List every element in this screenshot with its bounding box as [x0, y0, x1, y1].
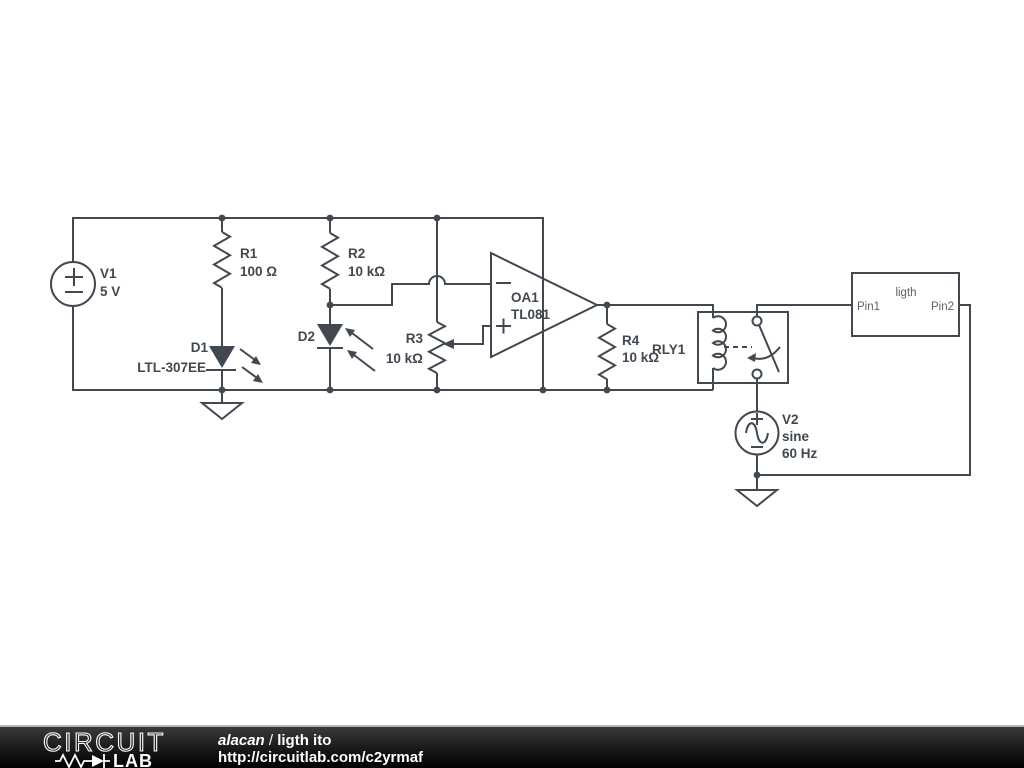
resistor-r2[interactable]: R2 10 kΩ [322, 233, 385, 289]
r3-value-label: 10 kΩ [386, 351, 423, 366]
logo-lab-text: LAB [113, 751, 153, 768]
rly1-ref-label: RLY1 [652, 342, 686, 357]
r4-zigzag[interactable] [599, 324, 615, 379]
ground-symbol-left[interactable] [202, 403, 242, 419]
d2-arrowhead-1 [345, 328, 355, 337]
wire-output[interactable] [597, 305, 713, 318]
resistor-r1[interactable]: R1 100 Ω [214, 232, 277, 288]
potentiometer-r3[interactable]: R3 10 kΩ [386, 322, 454, 373]
v1-value-label: 5 V [100, 284, 120, 299]
relay-rly1[interactable]: RLY1 [652, 312, 788, 383]
noninverting-input-icon [496, 319, 511, 334]
voltage-source-v1[interactable]: V1 5 V [51, 262, 120, 306]
d1-ref-label: D1 [191, 340, 209, 355]
oa1-ref-label: OA1 [511, 290, 539, 305]
v1-ref-label: V1 [100, 266, 117, 281]
share-url: http://circuitlab.com/c2yrmaf [218, 749, 423, 766]
v2-freq-label: 60 Hz [782, 446, 818, 461]
junction-dot [327, 215, 334, 222]
rly1-actuation-arrow [753, 347, 780, 359]
wire-inverting-input[interactable] [330, 276, 491, 305]
junction-dot [434, 215, 441, 222]
subcircuit-ligth[interactable]: ligth Pin1 Pin2 [852, 273, 959, 336]
v2-ref-label: V2 [782, 412, 799, 427]
resistor-r4[interactable]: R4 10 kΩ [599, 324, 659, 379]
r4-ref-label: R4 [622, 333, 640, 348]
junction-dot [219, 215, 226, 222]
r2-value-label: 10 kΩ [348, 264, 385, 279]
project-title: ligth ito [277, 732, 331, 749]
r2-ref-label: R2 [348, 246, 365, 261]
wire-noninverting-input[interactable] [452, 326, 491, 344]
junction-dot [604, 302, 611, 309]
r1-value-label: 100 Ω [240, 264, 277, 279]
ground-symbol-right[interactable] [737, 490, 777, 506]
junction-dot [219, 387, 226, 394]
divider: / [269, 732, 273, 749]
d2-ref-label: D2 [298, 329, 315, 344]
schematic-canvas[interactable]: V1 5 V R1 100 Ω R2 10 kΩ D1 LTL-307EE [0, 0, 1024, 725]
photodiode-d2[interactable]: D2 [298, 324, 375, 371]
junction-dot [604, 387, 611, 394]
d2-triangle [317, 324, 343, 346]
ligth-title-label: ligth [895, 287, 916, 299]
rly1-arrowhead [747, 353, 756, 362]
junction-dot [540, 387, 547, 394]
circuitlab-export-page: V1 5 V R1 100 Ω R2 10 kΩ D1 LTL-307EE [0, 0, 1024, 768]
rly1-coil [713, 316, 726, 370]
ligth-pin1-label: Pin1 [857, 301, 880, 313]
r3-ref-label: R3 [406, 331, 424, 346]
led-d1[interactable]: D1 LTL-307EE [137, 340, 263, 383]
d1-part-label: LTL-307EE [137, 360, 206, 375]
ground-icon [737, 490, 777, 506]
r3-wiper-arrow [443, 339, 454, 349]
voltage-source-v2[interactable]: V2 sine 60 Hz [736, 412, 818, 462]
ground-icon [202, 403, 242, 419]
r1-zigzag[interactable] [214, 232, 230, 288]
rly1-switch-blade [759, 325, 779, 372]
rly1-contact-bottom [753, 370, 762, 379]
junction-dot [434, 387, 441, 394]
ligth-pin2-label: Pin2 [931, 301, 954, 313]
r3-zigzag[interactable] [429, 322, 445, 373]
r2-zigzag[interactable] [322, 233, 338, 289]
byline: alacan / ligth ito [218, 732, 423, 749]
junction-dot [327, 387, 334, 394]
junction-dot [754, 472, 761, 479]
footer-bar: CIRCUIT LAB alacan / ligth ito http://ci… [0, 725, 1024, 768]
junction-dot [327, 302, 334, 309]
d2-arrowhead-2 [347, 350, 357, 359]
wire-bottom-rail[interactable] [73, 306, 713, 390]
r1-ref-label: R1 [240, 246, 258, 261]
rly1-contact-top [753, 317, 762, 326]
oa1-part-label: TL081 [511, 307, 551, 322]
d1-triangle [209, 346, 235, 368]
v2-value-label: sine [782, 429, 810, 444]
footer-credit: alacan / ligth ito http://circuitlab.com… [218, 732, 423, 766]
circuitlab-logo[interactable]: CIRCUIT LAB [42, 729, 212, 768]
author-name: alacan [218, 732, 265, 749]
